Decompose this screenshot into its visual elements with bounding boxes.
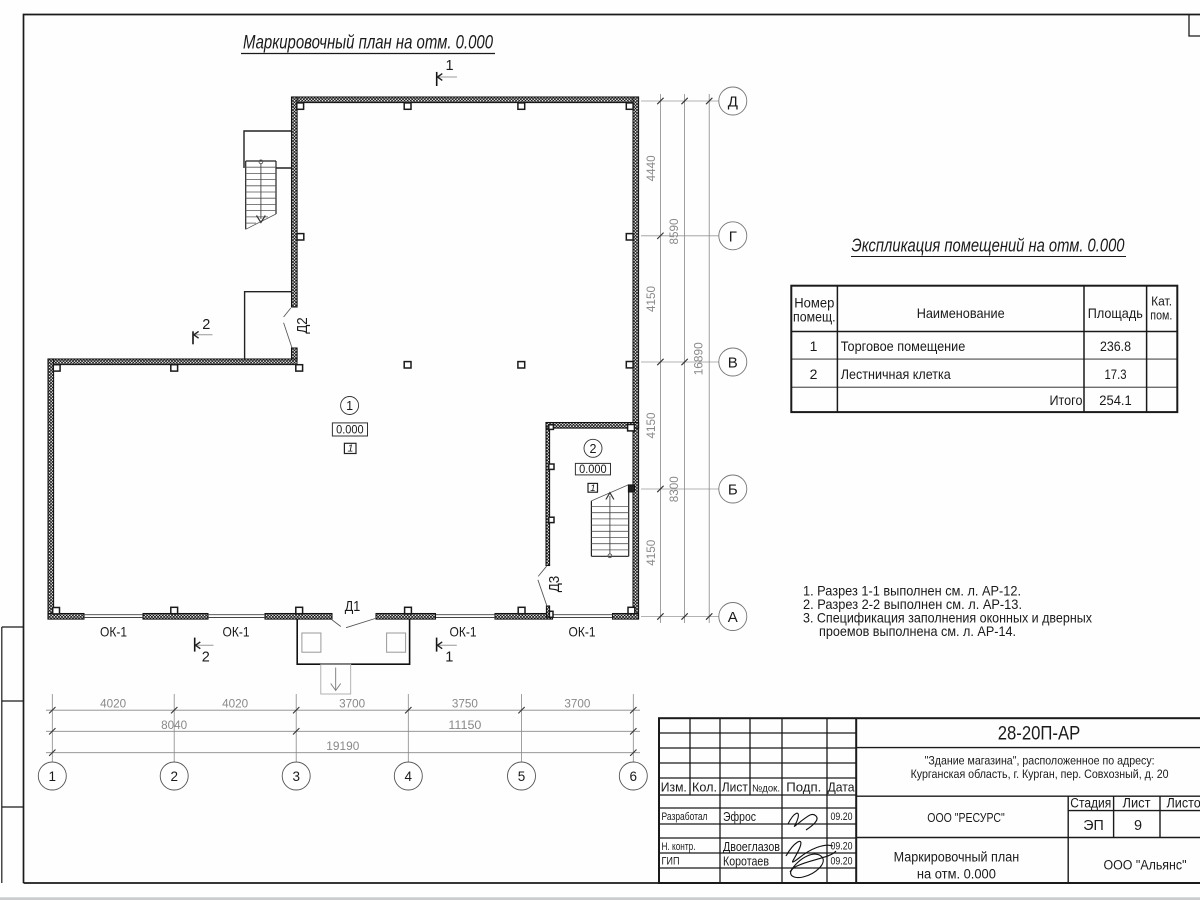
svg-text:В: В — [728, 355, 738, 372]
svg-text:Итого: Итого — [1050, 392, 1083, 408]
svg-text:3: 3 — [292, 769, 300, 784]
svg-text:236.8: 236.8 — [1100, 338, 1131, 354]
svg-text:17.3: 17.3 — [1105, 366, 1127, 382]
svg-text:3700: 3700 — [339, 699, 365, 711]
svg-text:1: 1 — [590, 483, 595, 494]
svg-text:4150: 4150 — [646, 413, 658, 439]
svg-text:Д2: Д2 — [295, 317, 311, 334]
svg-text:ОК-1: ОК-1 — [569, 624, 596, 640]
svg-text:5: 5 — [518, 769, 526, 784]
svg-text:Маркировочный план: Маркировочный план — [894, 849, 1020, 865]
svg-text:2: 2 — [810, 366, 818, 382]
svg-text:2: 2 — [170, 769, 178, 784]
svg-text:Лист: Лист — [722, 780, 748, 795]
svg-text:4: 4 — [405, 769, 413, 784]
svg-text:4440: 4440 — [646, 155, 658, 181]
svg-text:ОК-1: ОК-1 — [450, 624, 477, 640]
svg-text:Г: Г — [729, 228, 737, 245]
svg-text:28-20П-АР: 28-20П-АР — [998, 724, 1081, 745]
svg-text:Эфрос: Эфрос — [723, 809, 756, 824]
svg-text:6: 6 — [630, 769, 638, 784]
svg-text:3700: 3700 — [564, 699, 590, 711]
svg-text:Наименование: Наименование — [917, 305, 1005, 321]
svg-text:Курганская область, г. Курган,: Курганская область, г. Курган, пер. Совх… — [911, 767, 1169, 781]
svg-text:ООО "РЕСУРС": ООО "РЕСУРС" — [927, 810, 1005, 825]
svg-text:4150: 4150 — [646, 540, 658, 566]
svg-text:4020: 4020 — [100, 699, 126, 711]
svg-text:ЭП: ЭП — [1083, 818, 1104, 834]
svg-text:0.000: 0.000 — [336, 423, 364, 437]
svg-text:на отм. 0.000: на отм. 0.000 — [917, 866, 996, 882]
svg-text:8590: 8590 — [669, 219, 681, 245]
svg-text:16890: 16890 — [694, 342, 706, 375]
svg-text:1: 1 — [445, 650, 453, 666]
svg-text:№док.: №док. — [752, 784, 780, 795]
svg-text:Кол.: Кол. — [692, 780, 717, 795]
svg-text:Разработал: Разработал — [662, 811, 708, 823]
svg-text:1: 1 — [346, 399, 353, 413]
svg-text:проемов выполнена см. л. АР-14: проемов выполнена см. л. АР-14. — [819, 623, 1016, 639]
svg-text:09.20: 09.20 — [831, 841, 853, 853]
svg-text:09.20: 09.20 — [831, 811, 853, 823]
svg-text:Кат.: Кат. — [1151, 294, 1172, 309]
svg-text:8040: 8040 — [161, 720, 187, 732]
svg-text:Изм.: Изм. — [661, 780, 687, 795]
svg-text:Дата: Дата — [828, 780, 856, 795]
svg-text:09.20: 09.20 — [831, 856, 853, 868]
svg-text:ОК-1: ОК-1 — [100, 624, 127, 640]
svg-text:Стадия: Стадия — [1070, 796, 1111, 811]
svg-text:4020: 4020 — [222, 699, 248, 711]
svg-text:Коротаев: Коротаев — [723, 854, 769, 869]
svg-text:ГИП: ГИП — [662, 856, 680, 868]
svg-text:Подп.: Подп. — [786, 780, 821, 795]
svg-text:1: 1 — [810, 338, 818, 354]
svg-text:9: 9 — [1134, 818, 1142, 834]
svg-text:2: 2 — [202, 317, 210, 333]
svg-text:пом.: пом. — [1150, 308, 1172, 323]
svg-text:Лестничная клетка: Лестничная клетка — [841, 366, 951, 382]
svg-text:Н. контр.: Н. контр. — [662, 841, 696, 853]
svg-text:помещ.: помещ. — [793, 309, 836, 325]
svg-text:1: 1 — [445, 58, 453, 74]
svg-text:Лист: Лист — [1123, 796, 1151, 811]
svg-text:8300: 8300 — [669, 476, 681, 502]
svg-text:ООО "Альянс": ООО "Альянс" — [1104, 858, 1187, 874]
svg-text:ОК-1: ОК-1 — [223, 624, 250, 640]
svg-text:Площадь: Площадь — [1088, 305, 1143, 321]
svg-text:1: 1 — [49, 769, 57, 784]
svg-text:3750: 3750 — [452, 699, 478, 711]
svg-text:Б: Б — [728, 482, 738, 499]
svg-text:Листов: Листов — [1167, 796, 1200, 811]
svg-text:Двоеглазов: Двоеглазов — [723, 839, 780, 854]
svg-text:4150: 4150 — [646, 286, 658, 312]
svg-text:19190: 19190 — [326, 741, 359, 753]
svg-text:254.1: 254.1 — [1099, 392, 1132, 408]
svg-text:"Здание магазина", расположенн: "Здание магазина", расположенное по адре… — [925, 753, 1155, 767]
svg-text:Торговое помещение: Торговое помещение — [841, 338, 966, 354]
svg-text:Д1: Д1 — [345, 599, 361, 615]
svg-text:Д3: Д3 — [547, 576, 563, 593]
svg-text:1: 1 — [347, 443, 353, 455]
svg-text:11150: 11150 — [448, 720, 481, 732]
svg-text:Экспликация помещений на отм.: Экспликация помещений на отм. 0.000 — [852, 236, 1125, 256]
svg-text:Маркировочный план на отм. 0.0: Маркировочный план на отм. 0.000 — [243, 33, 493, 54]
svg-text:2: 2 — [590, 442, 597, 456]
svg-text:Д: Д — [728, 94, 738, 111]
svg-text:2: 2 — [202, 649, 210, 665]
svg-text:0.000: 0.000 — [579, 462, 607, 476]
svg-text:А: А — [728, 609, 738, 626]
